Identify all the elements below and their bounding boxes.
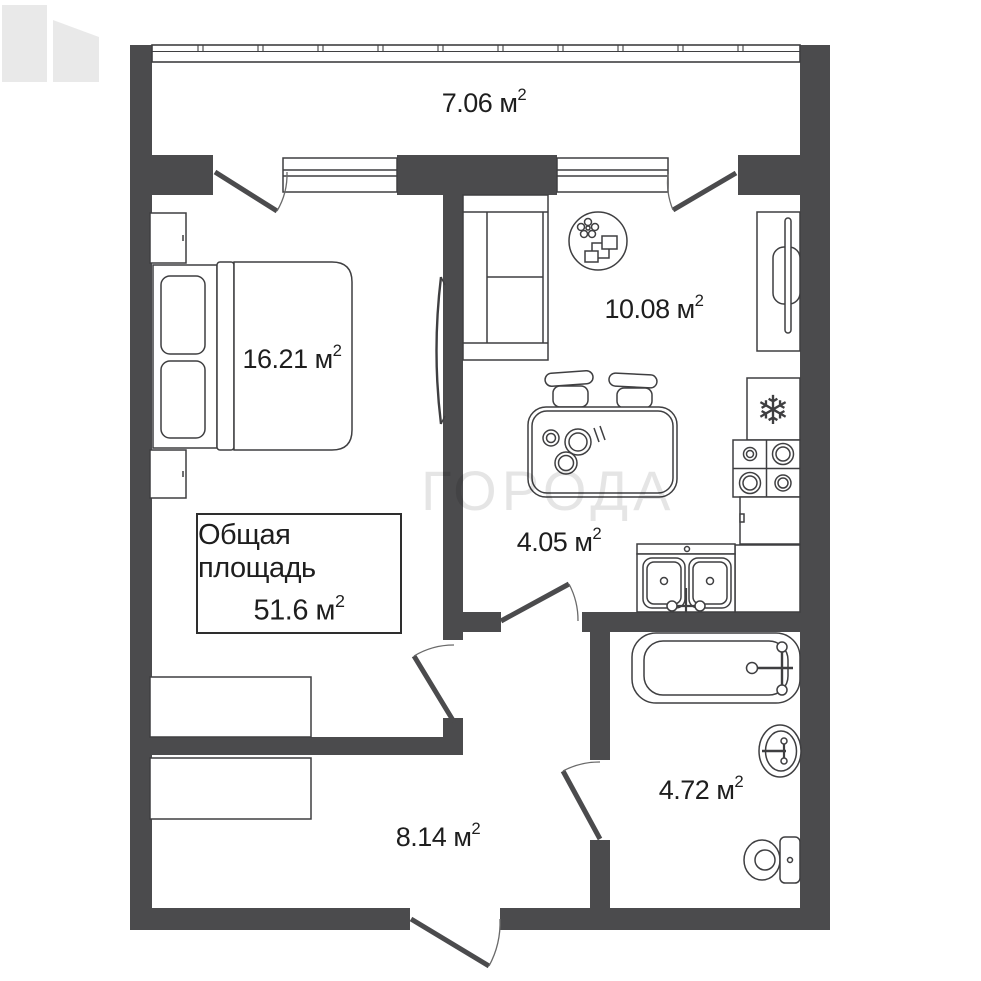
stove xyxy=(733,440,800,497)
dining-table xyxy=(528,407,677,497)
corridor-cabinet xyxy=(150,758,311,819)
nightstand-top xyxy=(150,213,186,263)
pillow-top xyxy=(161,276,205,354)
frame-icon xyxy=(585,251,598,262)
total-area-box: Общая площадь 51.6 м2 xyxy=(196,513,402,634)
bathroom-area-label: 4.72 м2 xyxy=(659,774,743,806)
total-area-title: Общая площадь xyxy=(198,519,400,585)
bedroom-wardrobe xyxy=(150,677,311,737)
pillow-bottom xyxy=(161,361,205,438)
kitchen-window xyxy=(557,158,668,192)
hall-door xyxy=(501,584,578,621)
kitchen-area-label: 10.08 м2 xyxy=(605,293,704,325)
kitchen-counter xyxy=(735,545,800,612)
balcony-area-label: 7.06 м2 xyxy=(442,87,526,119)
stool-2 xyxy=(609,373,658,408)
stool-1 xyxy=(545,370,594,407)
bedroom-door xyxy=(414,645,454,722)
frame-icon xyxy=(602,236,617,249)
bedroom-balcony-door xyxy=(215,172,287,211)
bathroom-door xyxy=(563,762,600,839)
kitchen-cabinet xyxy=(740,497,800,544)
sofa xyxy=(463,195,548,360)
tv-unit xyxy=(757,212,800,351)
bedroom-area-label: 16.21 м2 xyxy=(243,343,342,375)
entrance-door xyxy=(411,919,500,966)
nightstand-bottom xyxy=(150,450,186,498)
washbasin xyxy=(759,725,801,777)
total-area-value: 51.6 м2 xyxy=(254,593,345,628)
bathtub xyxy=(632,633,800,703)
toilet xyxy=(744,837,800,883)
decor-circle xyxy=(569,212,627,270)
floor-plan-drawing: ❄ xyxy=(0,0,981,981)
balcony-glazing xyxy=(152,45,800,62)
hall-area-label: 4.05 м2 xyxy=(517,526,601,558)
kitchen-balcony-door xyxy=(668,173,736,210)
bed-runner xyxy=(217,262,234,450)
floor-plan: ❄ ГОРОДА 7.06 м2 16.21 м2 10.08 м2 4.05 … xyxy=(0,0,981,981)
kitchen-sink xyxy=(637,544,735,612)
bedroom-window xyxy=(283,158,397,192)
snowflake-icon: ❄ xyxy=(756,389,790,433)
corridor-area-label: 8.14 м2 xyxy=(396,821,480,853)
